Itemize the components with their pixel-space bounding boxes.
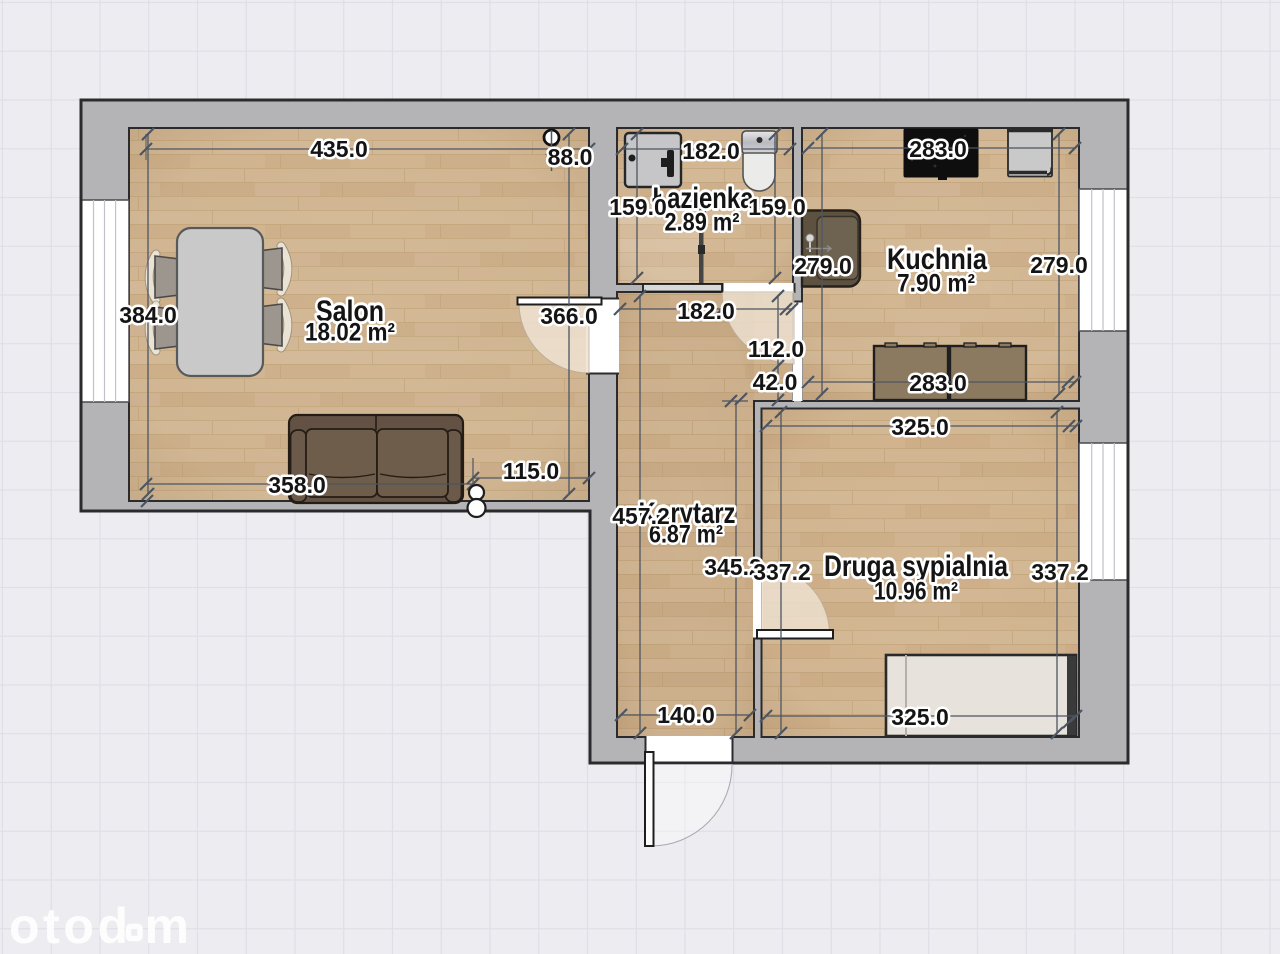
svg-text:435.0: 435.0 <box>310 136 368 162</box>
svg-text:112.0: 112.0 <box>748 336 804 362</box>
svg-text:182.0: 182.0 <box>677 298 735 324</box>
svg-text:325.0: 325.0 <box>891 414 949 440</box>
svg-text:384.0: 384.0 <box>119 302 177 328</box>
svg-text:115.0: 115.0 <box>503 458 559 484</box>
svg-text:279.0: 279.0 <box>1030 252 1088 278</box>
svg-text:2.89 m²: 2.89 m² <box>665 209 740 237</box>
svg-text:10.96 m²: 10.96 m² <box>874 578 958 606</box>
svg-text:159.0: 159.0 <box>748 194 806 220</box>
svg-text:366.0: 366.0 <box>540 303 598 329</box>
svg-text:457.2: 457.2 <box>612 503 670 529</box>
svg-text:337.2: 337.2 <box>753 559 811 585</box>
svg-text:m: m <box>145 898 189 954</box>
svg-text:42.0: 42.0 <box>753 369 798 395</box>
svg-text:325.0: 325.0 <box>891 704 949 730</box>
svg-text:159.0: 159.0 <box>609 194 667 220</box>
svg-text:279.0: 279.0 <box>794 253 852 279</box>
svg-text:7.90 m²: 7.90 m² <box>897 270 975 298</box>
svg-text:140.0: 140.0 <box>657 702 715 728</box>
svg-text:88.0: 88.0 <box>548 144 593 170</box>
svg-text:otod: otod <box>9 898 132 954</box>
svg-text:358.0: 358.0 <box>268 472 326 498</box>
svg-text:337.2: 337.2 <box>1031 559 1089 585</box>
svg-text:182.0: 182.0 <box>682 138 740 164</box>
svg-text:283.0: 283.0 <box>909 370 967 396</box>
svg-text:18.02 m²: 18.02 m² <box>305 319 395 347</box>
svg-text:283.0: 283.0 <box>909 136 967 162</box>
